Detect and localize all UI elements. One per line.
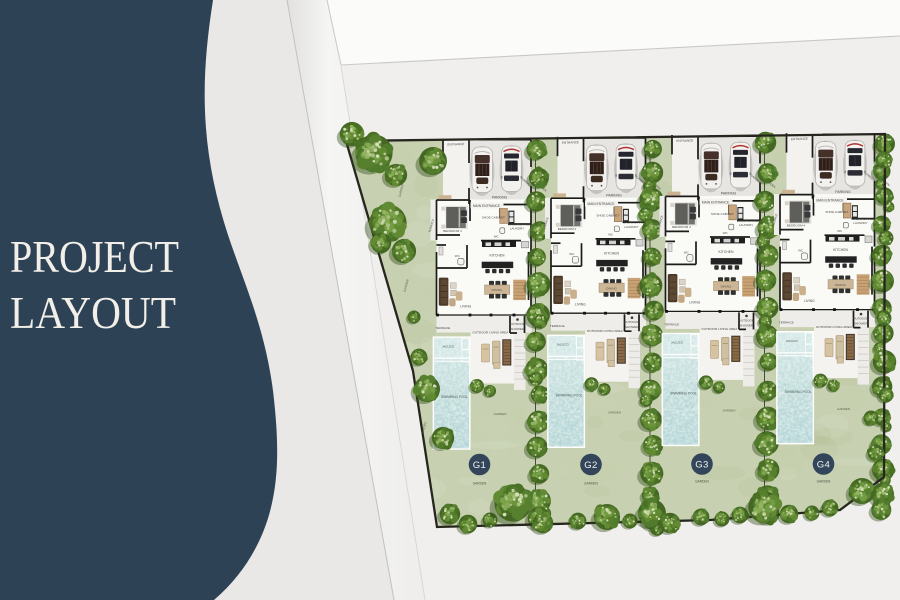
svg-text:JACUZZI: JACUZZI (556, 343, 568, 347)
svg-text:BEDROOM 4: BEDROOM 4 (443, 229, 462, 233)
svg-text:TERRACE: TERRACE (435, 326, 450, 330)
svg-text:LIVING: LIVING (689, 301, 700, 305)
svg-text:SHOE CABINET: SHOE CABINET (596, 214, 619, 218)
svg-text:OUTDOOR: OUTDOOR (739, 318, 755, 322)
svg-text:MAIN ENTRANCE: MAIN ENTRANCE (816, 199, 844, 203)
svg-text:SHOWER: SHOWER (740, 323, 754, 327)
svg-text:MAIN ENTRANCE: MAIN ENTRANCE (473, 204, 501, 208)
svg-text:DINING: DINING (492, 288, 503, 292)
svg-text:OUTDOOR: OUTDOOR (853, 317, 869, 321)
svg-text:GARDEN: GARDEN (723, 409, 736, 413)
svg-text:OUTDOOR: OUTDOOR (510, 322, 526, 326)
svg-text:GARDEN: GARDEN (494, 412, 507, 416)
svg-text:PARKING: PARKING (606, 194, 622, 198)
svg-text:BEDROOM 4: BEDROOM 4 (672, 225, 691, 229)
svg-text:GARDEN: GARDEN (837, 407, 850, 411)
svg-text:BEDROOM 4: BEDROOM 4 (558, 227, 577, 231)
svg-text:JACUZZI: JACUZZI (785, 339, 797, 343)
svg-text:KITCHEN: KITCHEN (490, 253, 505, 257)
svg-text:WC: WC (455, 254, 461, 258)
svg-text:SWIMMING POOL: SWIMMING POOL (670, 392, 697, 396)
svg-text:BEDROOM 4: BEDROOM 4 (787, 223, 806, 227)
svg-text:SWIMMING POOL: SWIMMING POOL (441, 395, 468, 399)
svg-text:SHOWER: SHOWER (854, 322, 868, 326)
svg-text:WC: WC (837, 229, 843, 233)
svg-text:PARKING: PARKING (835, 190, 851, 194)
svg-text:WC: WC (569, 252, 575, 256)
svg-text:ENTRANCE: ENTRANCE (562, 140, 579, 145)
svg-text:ENTRANCE: ENTRANCE (791, 137, 808, 142)
svg-text:SHOE CABINET: SHOE CABINET (482, 215, 505, 219)
svg-text:MAIN ENTRANCE: MAIN ENTRANCE (702, 200, 730, 204)
svg-text:LAUNDRY: LAUNDRY (853, 221, 867, 225)
svg-text:DINING: DINING (606, 286, 617, 290)
svg-text:LAUNDRY: LAUNDRY (739, 223, 753, 227)
svg-text:TERRACE: TERRACE (664, 322, 679, 326)
svg-text:OUTDOOR LIVING AREA: OUTDOOR LIVING AREA (816, 325, 853, 329)
svg-text:KITCHEN: KITCHEN (833, 248, 848, 252)
svg-text:PARKING: PARKING (721, 192, 737, 196)
svg-text:SHOE CABINET: SHOE CABINET (825, 210, 848, 214)
svg-text:ENTRANCE: ENTRANCE (676, 138, 693, 143)
svg-text:OUTDOOR LIVING AREA: OUTDOOR LIVING AREA (472, 331, 509, 335)
svg-text:PARKING: PARKING (492, 195, 508, 199)
svg-text:LAUNDRY: LAUNDRY (510, 227, 524, 231)
svg-text:TERRACE: TERRACE (779, 321, 794, 325)
svg-text:DINING: DINING (835, 283, 846, 287)
svg-text:WC: WC (723, 231, 729, 235)
svg-text:WC: WC (798, 249, 804, 253)
svg-text:DINING: DINING (721, 285, 732, 289)
svg-text:JACUZZI: JACUZZI (671, 341, 683, 345)
svg-text:WC: WC (608, 233, 614, 237)
svg-text:SWIMMING POOL: SWIMMING POOL (556, 393, 583, 397)
svg-text:LIVING: LIVING (804, 299, 815, 303)
svg-text:WC: WC (494, 234, 500, 238)
svg-text:SHOWER: SHOWER (511, 327, 525, 331)
svg-text:OUTDOOR: OUTDOOR (624, 320, 640, 324)
svg-text:LIVING: LIVING (575, 303, 586, 307)
svg-text:MAIN ENTRANCE: MAIN ENTRANCE (587, 202, 615, 206)
svg-text:SWIMMING POOL: SWIMMING POOL (785, 390, 812, 394)
svg-text:LAUNDRY: LAUNDRY (624, 225, 638, 229)
svg-text:SHOWER: SHOWER (625, 325, 639, 329)
svg-text:KITCHEN: KITCHEN (719, 250, 734, 254)
svg-text:GARDEN: GARDEN (608, 410, 621, 414)
svg-text:KITCHEN: KITCHEN (604, 252, 619, 256)
svg-text:SHOE CABINET: SHOE CABINET (711, 212, 734, 216)
svg-text:OUTDOOR LIVING AREA: OUTDOOR LIVING AREA (587, 329, 624, 333)
svg-text:OUTDOOR LIVING AREA: OUTDOOR LIVING AREA (701, 327, 738, 331)
svg-text:JACUZZI: JACUZZI (442, 344, 454, 348)
svg-text:LIVING: LIVING (460, 304, 471, 308)
svg-text:WC: WC (684, 250, 690, 254)
svg-text:TERRACE: TERRACE (550, 324, 565, 328)
svg-text:ENTRANCE: ENTRANCE (447, 142, 464, 147)
